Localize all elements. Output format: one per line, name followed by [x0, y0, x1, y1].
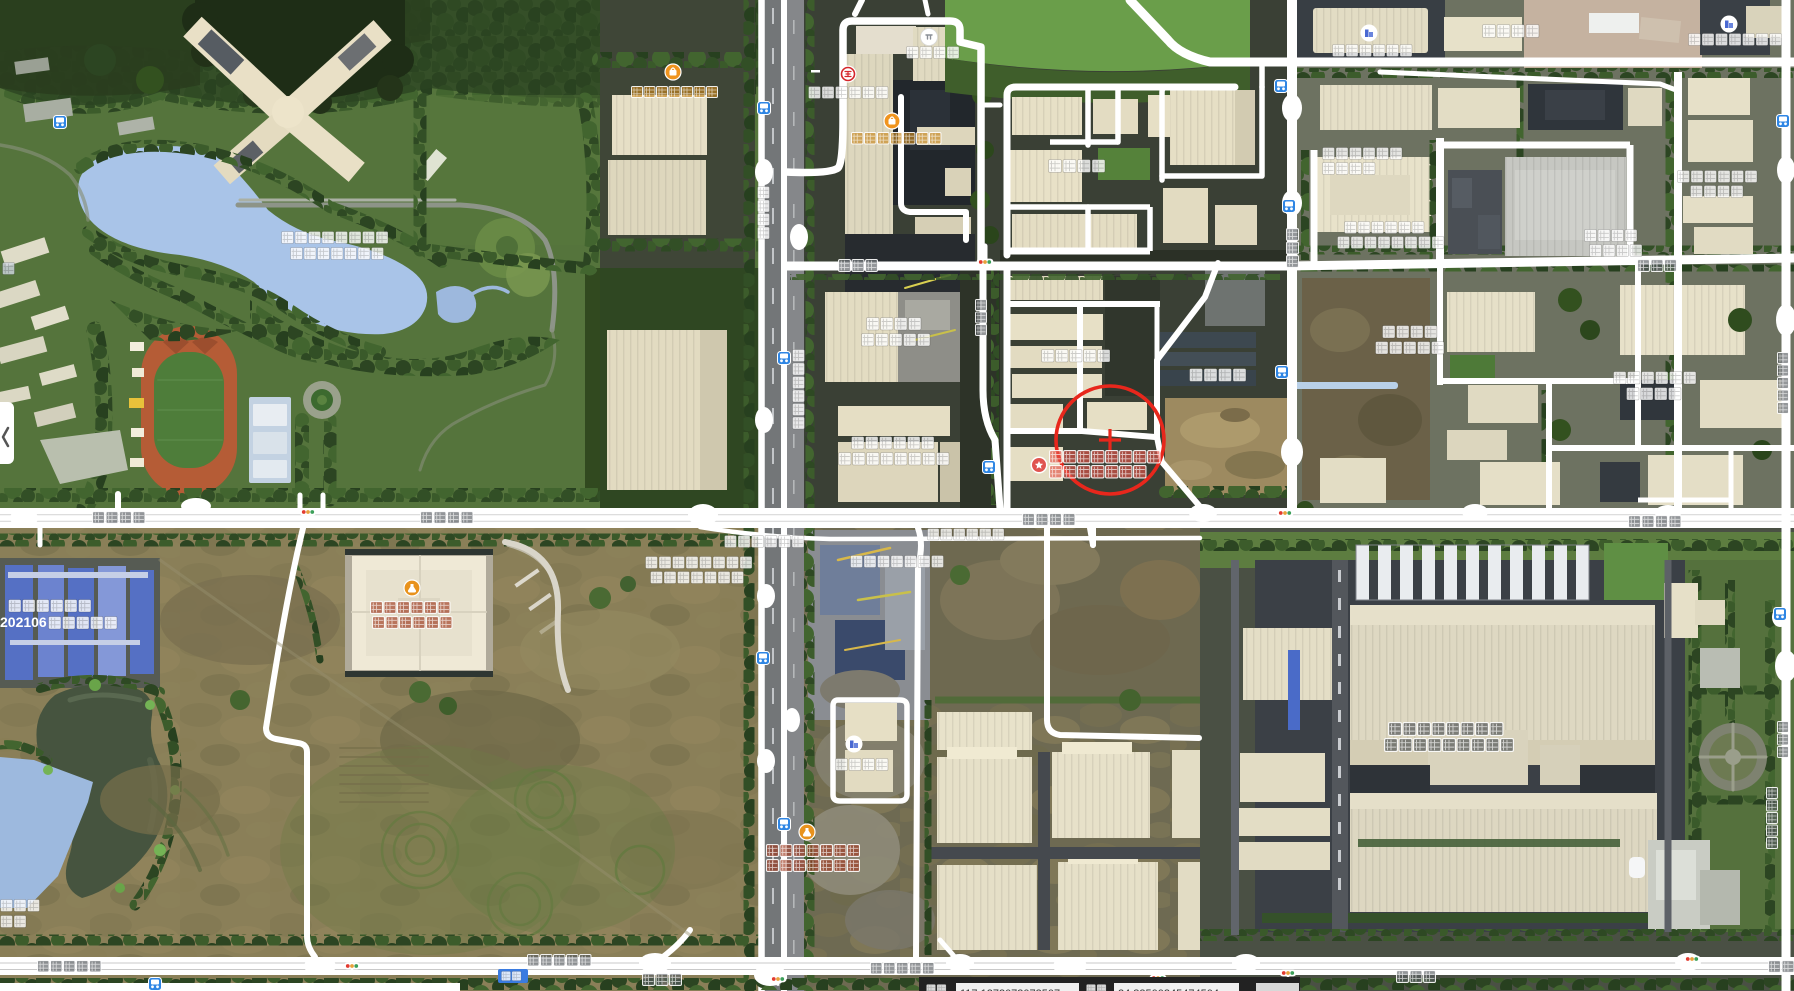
- svg-text:202106: 202106: [0, 614, 47, 630]
